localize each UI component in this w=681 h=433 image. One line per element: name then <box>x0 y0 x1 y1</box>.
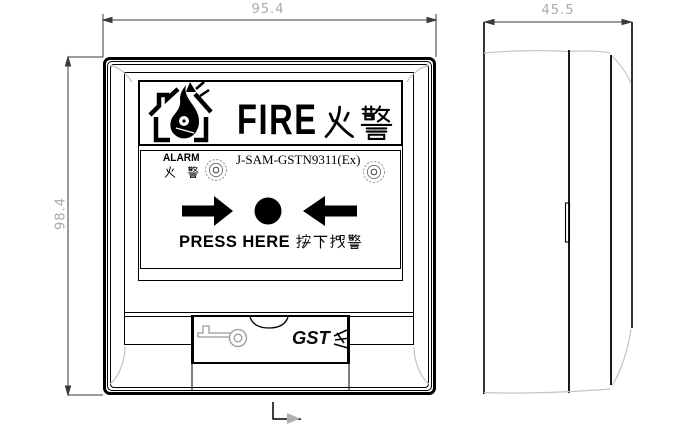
model-number: J-SAM-GSTN9311(Ex) <box>236 152 360 168</box>
divider-line-upper <box>124 312 414 313</box>
press-here-label: PRESS HERE <box>179 232 290 252</box>
alarm-label: ALARM <box>163 152 200 164</box>
side-view-outline <box>484 22 632 394</box>
section-marker-icon <box>273 402 301 424</box>
gst-logo: GST <box>292 328 330 349</box>
drawing-canvas: 95.4 98.4 45.5 FIRE 火警 ALARM 火 警 J-SAM-G… <box>0 0 681 433</box>
front-height-dimension: 98.4 <box>54 193 69 235</box>
front-width-dimension: 95.4 <box>247 2 289 17</box>
fire-label: FIRE <box>237 102 318 138</box>
front-height-dim-line <box>65 57 103 395</box>
side-lock-detail <box>566 203 570 242</box>
side-depth-dimension: 45.5 <box>537 3 579 18</box>
alarm-label-cn: 火 警 <box>0 0 1 1</box>
side-view-bevel-curves <box>484 51 631 393</box>
front-width-dim-line <box>103 14 436 57</box>
side-depth-dim-line <box>485 19 631 24</box>
press-here-label-cn: 按下报警 <box>0 0 1 1</box>
fire-label-cn: 火警 <box>0 0 1 1</box>
